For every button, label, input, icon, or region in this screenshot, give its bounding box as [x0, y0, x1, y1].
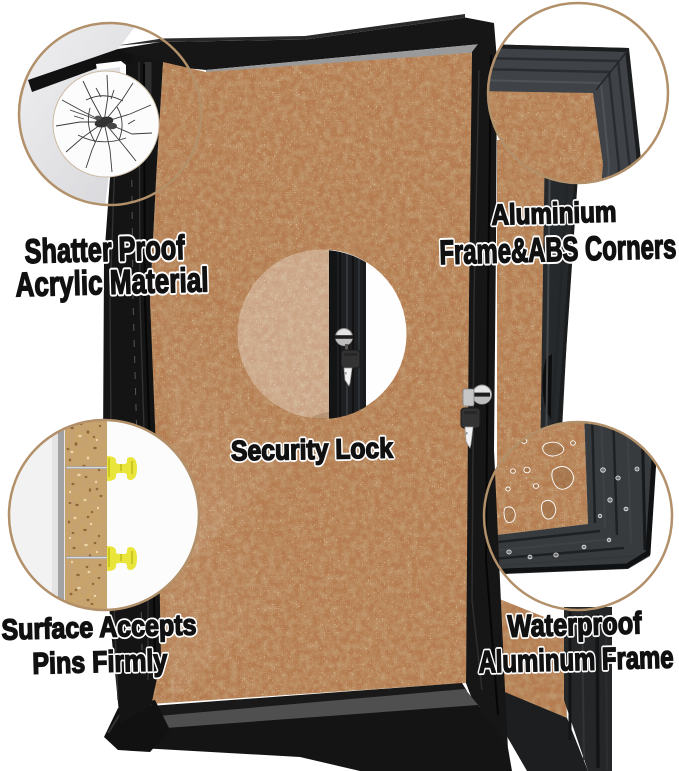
svg-text:Frame&ABS Corners: Frame&ABS Corners [439, 228, 677, 272]
svg-text:Aluminum Frame: Aluminum Frame [478, 640, 674, 680]
svg-text:Security Lock: Security Lock [231, 433, 394, 467]
svg-text:Acrylic Material: Acrylic Material [15, 261, 209, 304]
svg-text:Pins Firmly: Pins Firmly [32, 644, 168, 681]
svg-text:Waterproof: Waterproof [507, 605, 642, 644]
svg-text:Surface Accepts: Surface Accepts [1, 609, 197, 646]
svg-text:Aluminium: Aluminium [491, 196, 617, 231]
